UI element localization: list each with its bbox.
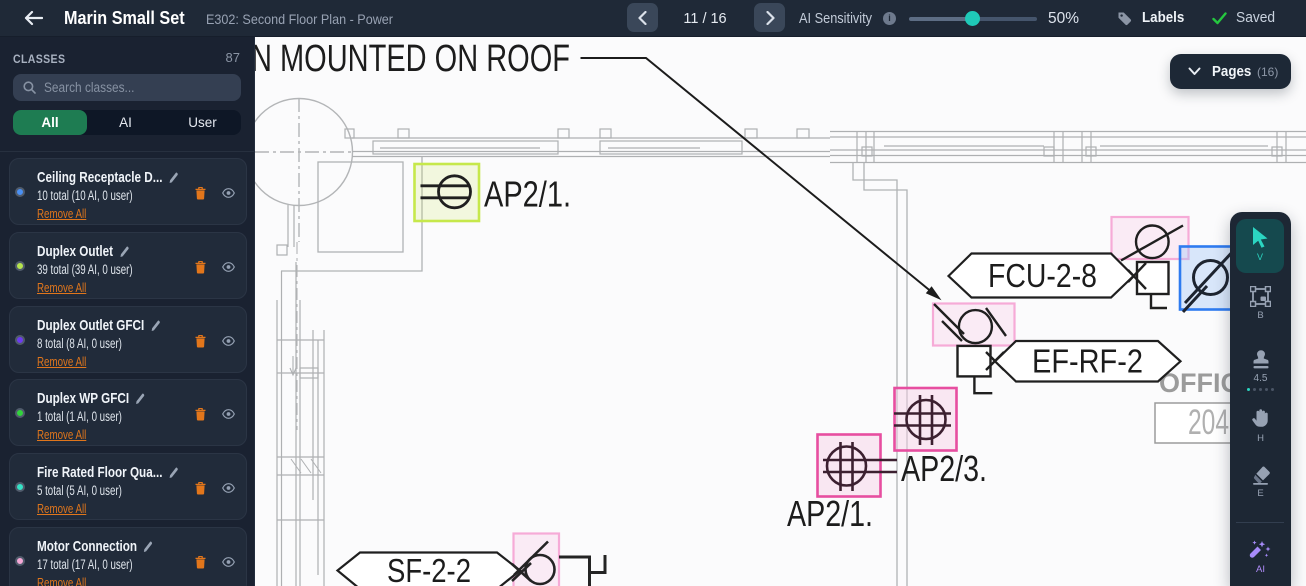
svg-text:AP2/1.: AP2/1. bbox=[484, 174, 571, 215]
svg-text:EF-RF-2: EF-RF-2 bbox=[1032, 343, 1143, 380]
svg-text:FCU-2-8: FCU-2-8 bbox=[988, 257, 1097, 294]
svg-text:SF-2-2: SF-2-2 bbox=[387, 552, 471, 586]
svg-text:N MOUNTED ON ROOF: N MOUNTED ON ROOF bbox=[255, 38, 570, 80]
svg-text:AP2/3.: AP2/3. bbox=[901, 448, 987, 489]
svg-text:204: 204 bbox=[1188, 403, 1229, 442]
svg-text:AP2/1.: AP2/1. bbox=[787, 493, 873, 534]
